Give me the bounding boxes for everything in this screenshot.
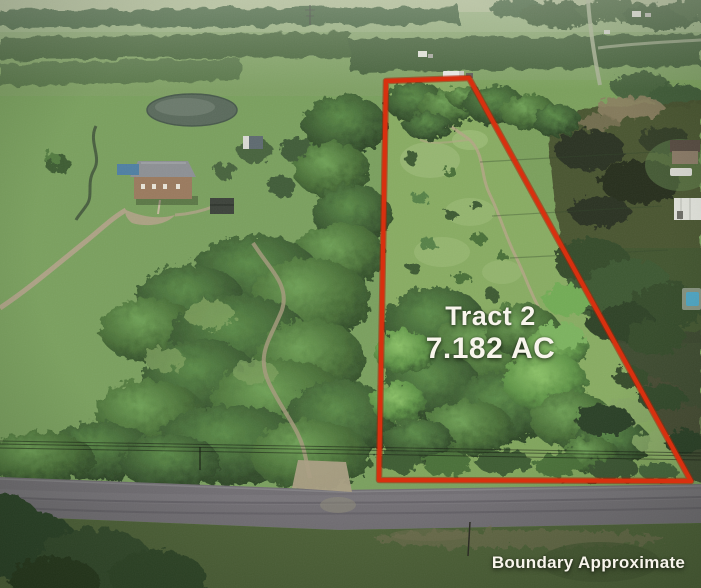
vignette [0,0,701,588]
aerial-scene [0,0,701,588]
aerial-photo: Tract 2 7.182 AC Boundary Approximate [0,0,701,588]
